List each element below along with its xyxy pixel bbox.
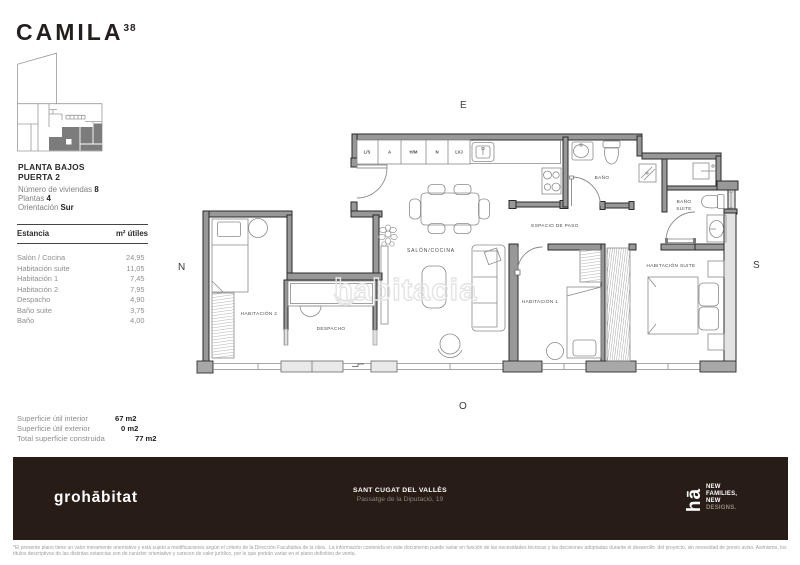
svg-text:SALÓN/COCINA: SALÓN/COCINA: [407, 247, 455, 254]
svg-text:E: E: [460, 100, 467, 111]
svg-text:habitacia: habitacia: [334, 272, 477, 307]
svg-text:HABITACIÓN 1: HABITACIÓN 1: [522, 298, 558, 304]
svg-text:A: A: [388, 150, 391, 155]
svg-text:BAÑO: BAÑO: [677, 198, 692, 204]
svg-text:LVJ: LVJ: [455, 150, 463, 155]
svg-text:N: N: [435, 150, 438, 155]
svg-text:ESPACIO DE PASO: ESPACIO DE PASO: [531, 223, 579, 228]
svg-text:SUITE: SUITE: [676, 206, 692, 211]
svg-text:HABITACIÓN 2: HABITACIÓN 2: [241, 310, 277, 316]
svg-text:H/M: H/M: [410, 150, 418, 155]
svg-text:L/S: L/S: [364, 150, 371, 155]
svg-text:HABITACIÓN SUITE: HABITACIÓN SUITE: [646, 262, 695, 268]
svg-text:DESPACHO: DESPACHO: [317, 326, 346, 331]
svg-text:S: S: [753, 260, 760, 271]
svg-text:N: N: [178, 262, 185, 273]
svg-text:O: O: [459, 401, 467, 412]
svg-text:BAÑO: BAÑO: [595, 174, 610, 180]
